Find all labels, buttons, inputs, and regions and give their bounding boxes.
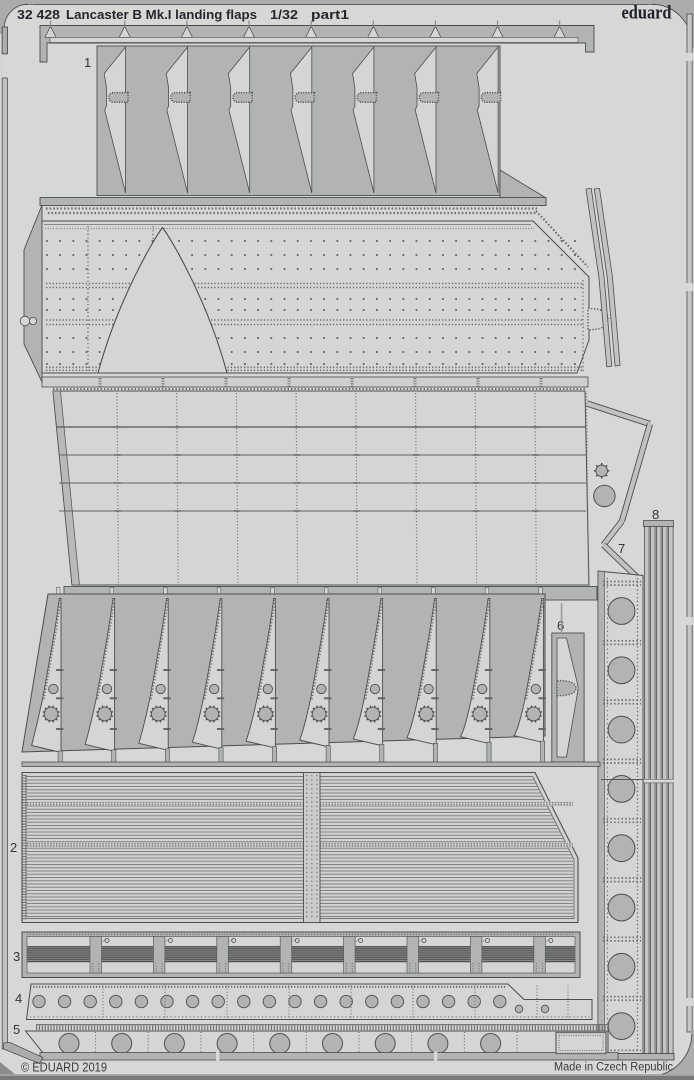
- svg-text:1/32: 1/32: [270, 7, 298, 22]
- svg-text:32 428: 32 428: [17, 7, 60, 22]
- svg-text:© EDUARD 2019: © EDUARD 2019: [21, 1060, 107, 1075]
- svg-text:6: 6: [557, 618, 564, 633]
- svg-text:Lancaster B Mk.I landing flaps: Lancaster B Mk.I landing flaps: [66, 7, 257, 22]
- svg-text:1: 1: [84, 55, 91, 70]
- svg-text:3: 3: [13, 949, 20, 964]
- svg-text:5: 5: [13, 1022, 20, 1037]
- svg-text:Made in Czech Republic: Made in Czech Republic: [554, 1062, 673, 1074]
- svg-text:2: 2: [10, 840, 17, 855]
- svg-text:7: 7: [618, 541, 625, 556]
- svg-text:eduard: eduard: [622, 4, 673, 24]
- svg-text:4: 4: [15, 991, 22, 1006]
- svg-text:part1: part1: [311, 7, 349, 22]
- svg-text:8: 8: [652, 507, 659, 522]
